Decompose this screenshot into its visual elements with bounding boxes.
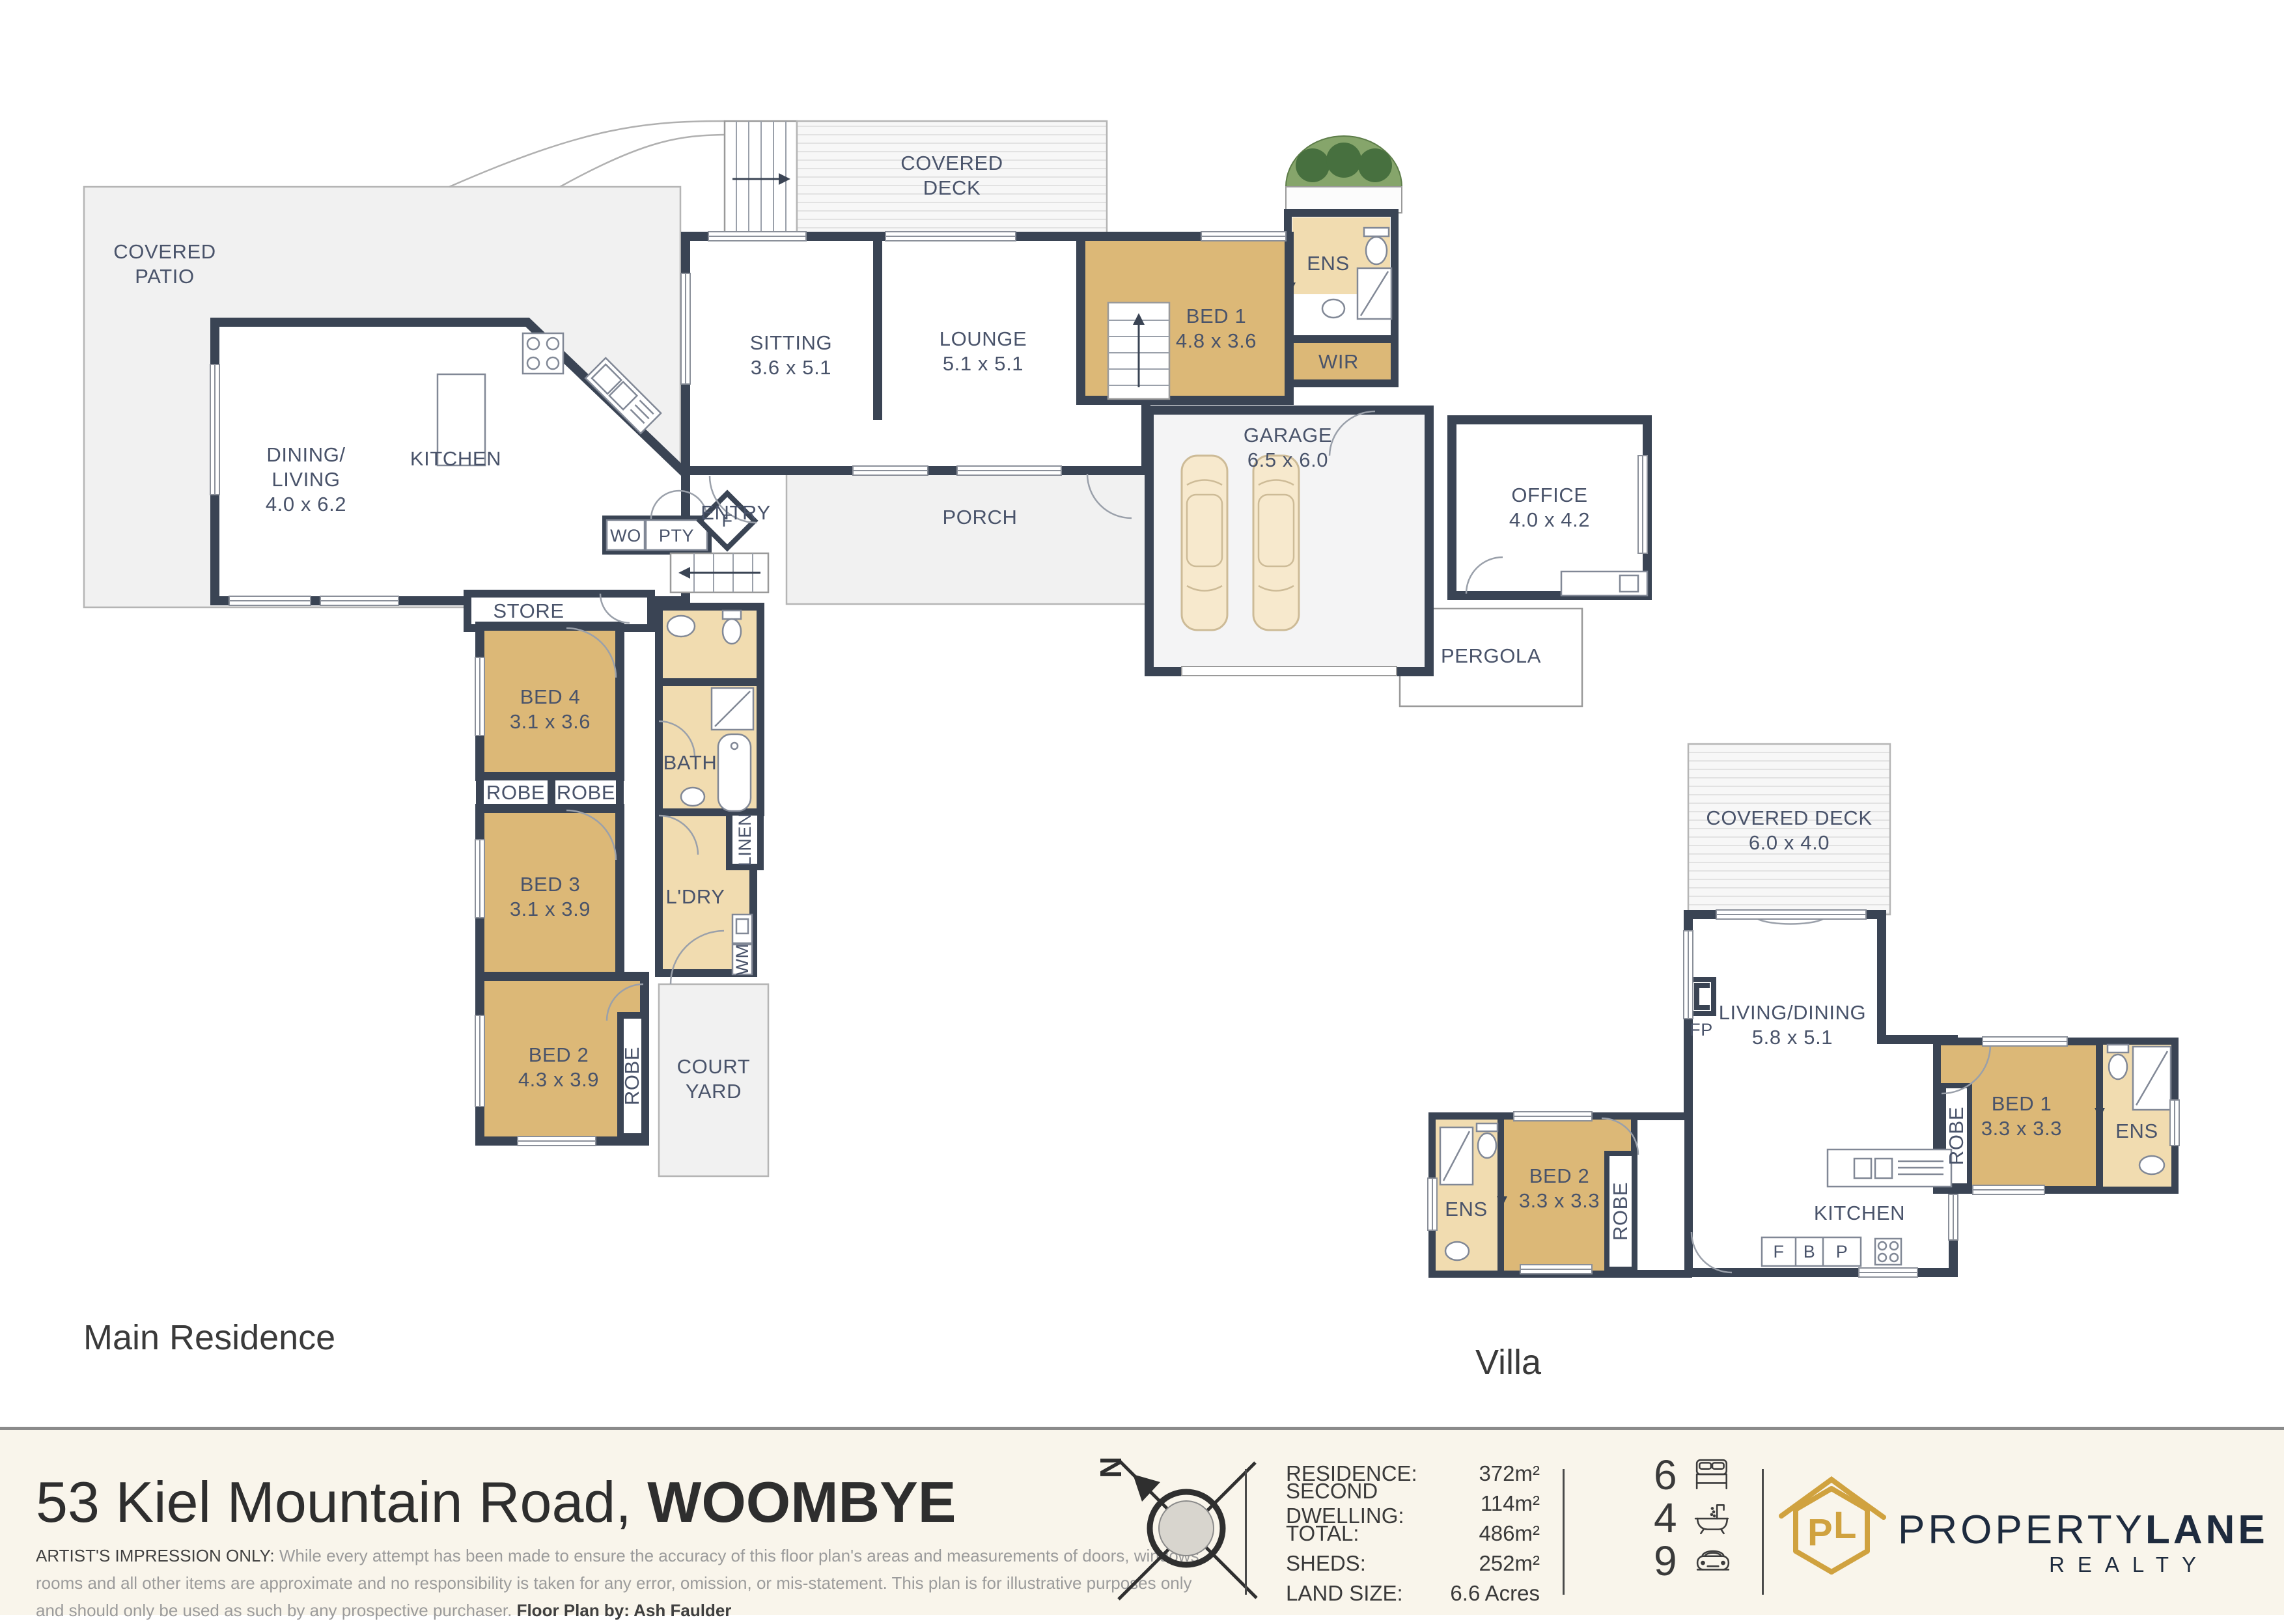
label-ens-main: ENS — [1307, 251, 1350, 276]
label-robe-a: ROBE — [486, 780, 545, 805]
garden-planter — [1286, 136, 1402, 213]
label-villa-p: P — [1836, 1242, 1848, 1261]
svg-text:L: L — [1833, 1504, 1856, 1547]
footer-divider-2 — [1563, 1469, 1565, 1595]
garage-door — [1182, 667, 1397, 676]
path-swoosh-upper — [449, 121, 725, 187]
label-robe-c: ROBE — [620, 1047, 645, 1105]
office-sink-counter — [1561, 571, 1647, 596]
label-covered-deck: COVEREDDECK — [900, 151, 1003, 200]
car-2 — [1253, 456, 1299, 630]
label-sitting: SITTING3.6 x 5.1 — [750, 331, 832, 380]
label-villa-bed2: BED 23.3 x 3.3 — [1519, 1164, 1600, 1213]
label-pergola: PERGOLA — [1441, 644, 1541, 668]
label-office: OFFICE4.0 x 4.2 — [1509, 483, 1590, 532]
page-title: 53 Kiel Mountain Road, WOOMBYE — [36, 1469, 956, 1535]
counts-panel: 6 4 9 — [1654, 1453, 1677, 1582]
bed-icon — [1694, 1457, 1732, 1493]
label-garage: GARAGE6.5 x 6.0 — [1244, 423, 1332, 473]
label-villa-fp: FP — [1690, 1020, 1713, 1039]
stat-land-size: LAND SIZE:6.6 Acres — [1286, 1578, 1540, 1608]
disclaimer-text: ARTIST'S IMPRESSION ONLY: While every at… — [36, 1542, 1204, 1624]
label-ldry: L'DRY — [665, 885, 725, 909]
label-covered-patio: COVEREDPATIO — [113, 240, 216, 289]
bath-count: 4 — [1654, 1496, 1677, 1539]
label-entry: ENTRY — [701, 501, 771, 525]
label-lounge: LOUNGE5.1 x 5.1 — [940, 327, 1027, 376]
label-villa-bed1: BED 13.3 x 3.3 — [1981, 1092, 2062, 1141]
bed-count: 6 — [1654, 1453, 1677, 1496]
label-pty: PTY — [659, 526, 694, 545]
villa-fireplace — [1690, 980, 1714, 1013]
car-icon — [1694, 1543, 1732, 1578]
stats-panel: RESIDENCE:372m² SECOND DWELLING:114m² TO… — [1286, 1459, 1540, 1608]
internal-stairs-down — [671, 553, 768, 592]
label-bed2: BED 24.3 x 3.9 — [518, 1043, 599, 1092]
stat-second-dwelling: SECOND DWELLING:114m² — [1286, 1489, 1540, 1519]
label-bed4: BED 43.1 x 3.6 — [510, 685, 591, 734]
floor-plan-page: COVEREDPATIO COVEREDDECK SITTING3.6 x 5.… — [0, 0, 2284, 1615]
label-robe-b: ROBE — [557, 780, 615, 805]
label-porch: PORCH — [943, 505, 1018, 530]
label-bed3: BED 33.1 x 3.9 — [510, 872, 591, 922]
label-villa-living: LIVING/DINING5.8 x 5.1 — [1719, 1000, 1867, 1050]
label-villa-b: B — [1804, 1242, 1816, 1261]
label-bath: BATH — [663, 750, 717, 775]
label-wm: WM — [732, 943, 752, 975]
label-villa-ens2: ENS — [1445, 1197, 1488, 1222]
label-fridge: F — [721, 511, 732, 530]
label-bed1: BED 14.8 x 3.6 — [1176, 304, 1257, 353]
label-wir: WIR — [1318, 350, 1359, 374]
brand-tagline: REALTY — [1898, 1552, 2209, 1577]
label-store: STORE — [493, 599, 564, 624]
brand-wordmark: PROPERTYLANE — [1898, 1507, 2268, 1553]
section-label-villa: Villa — [1475, 1342, 1541, 1383]
compass-icon: N — [1100, 1443, 1267, 1610]
label-villa-robe1: ROBE — [1944, 1107, 1969, 1165]
deck-stairs — [725, 121, 797, 236]
svg-text:P: P — [1807, 1511, 1833, 1554]
footer-divider-3 — [1762, 1469, 1764, 1595]
label-dining-living: DINING/LIVING4.0 x 6.2 — [266, 443, 346, 517]
label-wo: WO — [610, 526, 641, 545]
kitchen-cooktop — [523, 333, 563, 374]
label-villa-ens1: ENS — [2115, 1119, 2158, 1144]
footer-divider-1 — [1245, 1469, 1247, 1595]
property-lane-logo-icon: P L — [1770, 1470, 1893, 1594]
section-label-main-residence: Main Residence — [83, 1317, 335, 1358]
car-count: 9 — [1654, 1539, 1677, 1582]
label-courtyard: COURTYARD — [677, 1054, 751, 1104]
bath-icon — [1694, 1500, 1732, 1535]
label-villa-robe2: ROBE — [1608, 1182, 1633, 1241]
footer-bar: 53 Kiel Mountain Road, WOOMBYE ARTIST'S … — [0, 1427, 2284, 1615]
internal-stairs-up — [1108, 303, 1169, 399]
label-kitchen-main: KITCHEN — [410, 447, 501, 471]
floor-plan-drawing — [0, 0, 2284, 1432]
stat-sheds: SHEDS:252m² — [1286, 1548, 1540, 1578]
label-villa-deck: COVERED DECK6.0 x 4.0 — [1706, 806, 1872, 855]
label-linen: LINEN — [735, 813, 755, 867]
path-swoosh-mid — [560, 135, 725, 187]
car-1 — [1182, 456, 1227, 630]
svg-text:N: N — [1100, 1457, 1128, 1478]
label-villa-f: F — [1773, 1242, 1784, 1261]
label-villa-kitchen: KITCHEN — [1814, 1201, 1905, 1226]
